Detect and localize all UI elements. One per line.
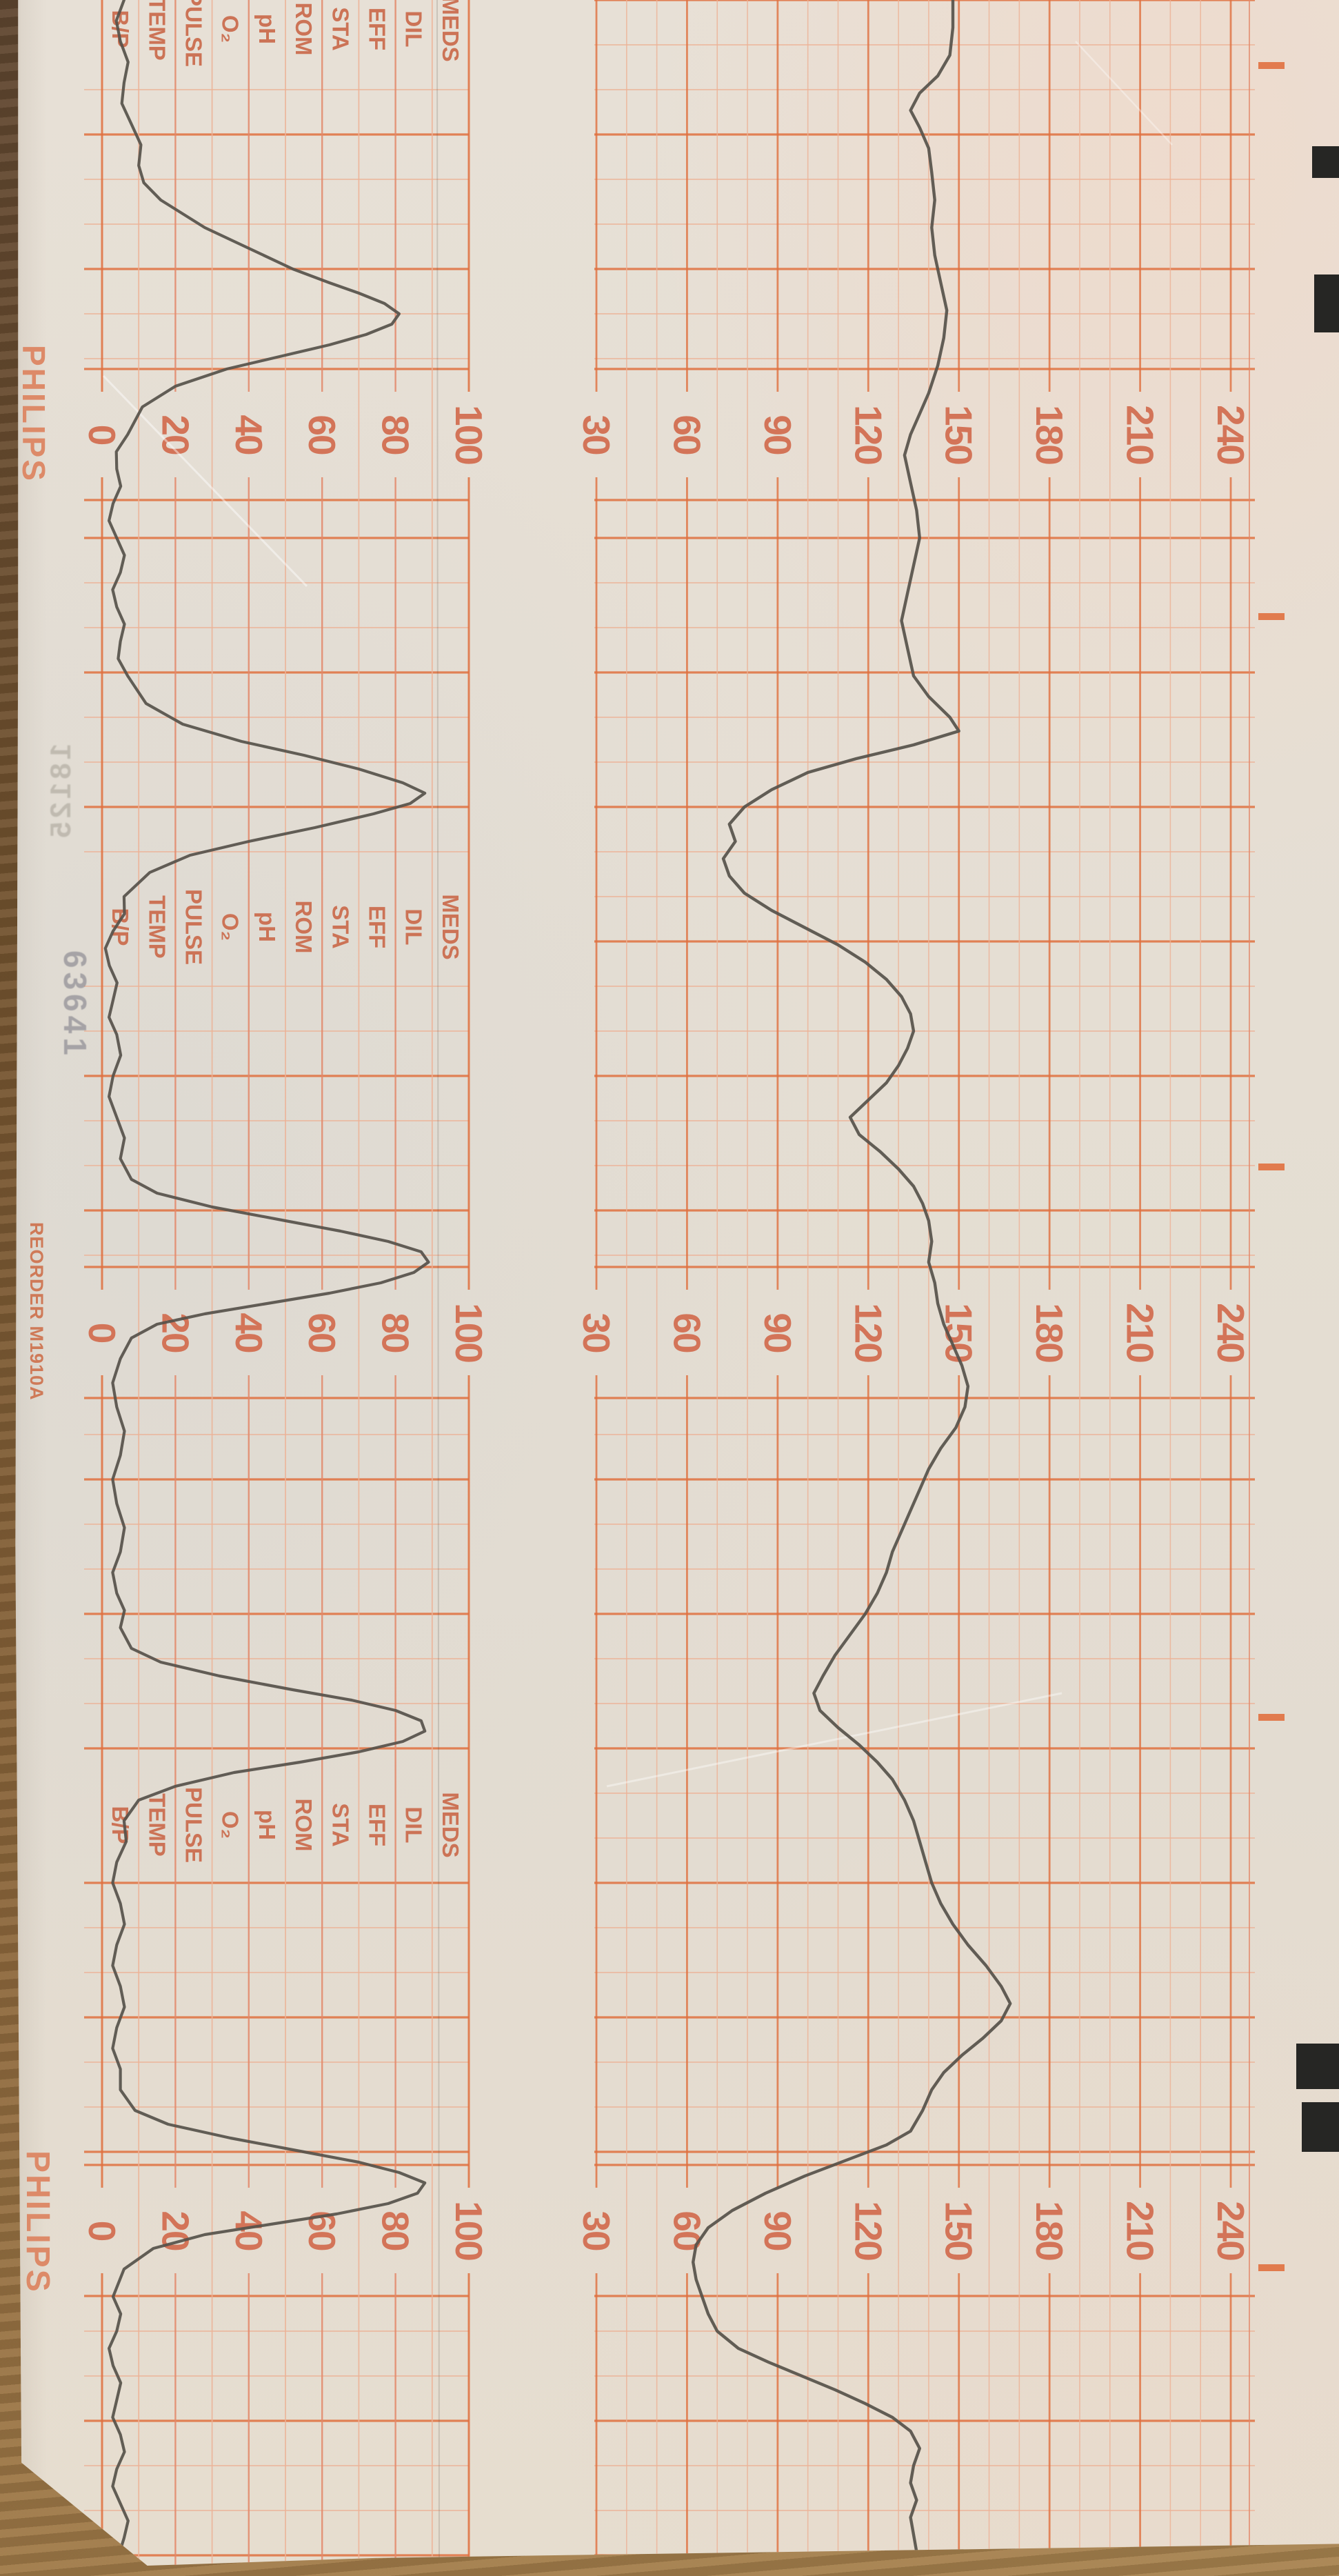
scale-number: 210 (1119, 405, 1162, 464)
scale-number: 60 (301, 1312, 343, 1352)
scale-number: 150 (938, 1303, 980, 1362)
scale-number: 150 (938, 2201, 980, 2260)
scale-number: 240 (1209, 2201, 1252, 2260)
annotation-label-temp: TEMP (144, 1793, 170, 1857)
annotation-label-ph: pH (254, 1810, 280, 1840)
philips-logo-top: PHILIPS (15, 345, 52, 483)
scale-number: 240 (1209, 1303, 1252, 1362)
annotation-label-bp: B/P (108, 908, 133, 946)
scale-number: 20 (154, 2210, 197, 2250)
annotation-label-sta: STA (328, 1803, 353, 1847)
scale-number: 120 (847, 1303, 889, 1362)
photo-of-ctg-strip: { "device": { "brand": "PHILIPS", "reord… (0, 0, 1339, 2576)
scale-number: 60 (665, 415, 708, 455)
annotation-label-dil: DIL (401, 10, 427, 47)
ctg-chart-paper: 3060901201501802102400204060801003060901… (0, 0, 1339, 2576)
annotation-label-temp: TEMP (144, 895, 170, 959)
annotation-label-sta: STA (328, 905, 353, 949)
annotation-label-ph: pH (254, 14, 280, 44)
annotation-label-pulse: PULSE (181, 1787, 207, 1863)
scale-number: 80 (374, 1312, 417, 1352)
scale-number: 60 (665, 1312, 708, 1352)
reorder-part-number: REORDER M1910A (26, 1222, 47, 1401)
annotation-label-pulse: PULSE (181, 0, 207, 67)
end-of-paper-black-mark (1302, 2102, 1339, 2152)
annotation-label-pulse: PULSE (181, 889, 207, 965)
paper-creases (103, 0, 1172, 2576)
annotation-label-temp: TEMP (144, 0, 170, 61)
margin-ghost-number: 18125 (44, 743, 77, 841)
annotation-label-rom: ROM (291, 1799, 316, 1852)
scale-number: 80 (374, 415, 417, 455)
uterine-trace (105, 0, 429, 2576)
annotation-label-dil: DIL (401, 1806, 427, 1843)
scale-number: 60 (665, 2210, 708, 2250)
fhr-trace-group (693, 0, 1010, 2576)
scale-number: 180 (1028, 1303, 1071, 1362)
annotation-label-o: O₂ (218, 15, 243, 43)
scale-number: 30 (575, 1312, 618, 1352)
annotation-label-eff: EFF (365, 1804, 390, 1846)
scale-number: 180 (1028, 405, 1071, 464)
annotation-label-o: O₂ (218, 913, 243, 941)
scale-number: 120 (847, 2201, 889, 2260)
scale-number: 210 (1119, 1303, 1162, 1362)
scale-number: 100 (447, 2201, 490, 2260)
scale-number: 30 (575, 415, 618, 455)
philips-logo-bottom: PHILIPS (19, 2150, 57, 2294)
scale-number: 0 (81, 1323, 123, 1343)
annotation-label-rom: ROM (291, 901, 316, 954)
scale-number: 150 (938, 405, 980, 464)
page-dash-mark (1258, 2264, 1285, 2271)
scale-number: 100 (447, 405, 490, 464)
annotation-label-eff: EFF (365, 8, 390, 50)
scale-number: 210 (1119, 2201, 1162, 2260)
scale-number: 40 (228, 1312, 270, 1352)
uterine-trace-group (105, 0, 429, 2576)
annotation-label-rom: ROM (291, 3, 316, 56)
annotation-label-eff: EFF (365, 906, 390, 948)
scale-number: 90 (756, 2210, 799, 2250)
annotation-label-sta: STA (328, 7, 353, 51)
fhr-trace (693, 0, 1010, 2576)
annotation-label-ph: pH (254, 912, 280, 942)
scale-numbers: 3060901201501802102400204060801003060901… (81, 405, 1252, 2260)
annotation-label-o: O₂ (218, 1811, 243, 1839)
margin-marks (1258, 62, 1339, 2271)
scale-number: 30 (575, 2210, 618, 2250)
end-of-paper-black-mark (1312, 146, 1339, 178)
page-dash-mark (1258, 1714, 1285, 1721)
ctg-grid-and-traces: 3060901201501802102400204060801003060901… (0, 0, 1339, 2576)
scale-number: 40 (228, 415, 270, 455)
scale-number: 90 (756, 1312, 799, 1352)
annotation-label-meds: MEDS (438, 0, 463, 62)
end-of-paper-black-mark (1296, 2044, 1339, 2089)
fhr-section-gridlines (596, 0, 1249, 2576)
annotation-label-meds: MEDS (438, 894, 463, 959)
scale-number: 0 (81, 2221, 123, 2241)
stamp-number: 63641 (57, 950, 94, 1059)
end-of-paper-black-mark (1314, 274, 1339, 332)
uterine-section-gridlines (102, 0, 469, 2576)
scale-number: 90 (756, 415, 799, 455)
annotation-label-dil: DIL (401, 908, 427, 945)
scale-number: 180 (1028, 2201, 1071, 2260)
annotation-label-meds: MEDS (438, 1792, 463, 1857)
scale-number: 0 (81, 425, 123, 445)
page-dash-mark (1258, 62, 1285, 69)
scale-number: 80 (374, 2210, 417, 2250)
scale-number: 240 (1209, 405, 1252, 464)
page-dash-mark (1258, 1164, 1285, 1170)
scale-number: 60 (301, 415, 343, 455)
scale-number: 20 (154, 1312, 197, 1352)
scale-number: 100 (447, 1303, 490, 1362)
page-dash-mark (1258, 613, 1285, 620)
scale-number: 120 (847, 405, 889, 464)
